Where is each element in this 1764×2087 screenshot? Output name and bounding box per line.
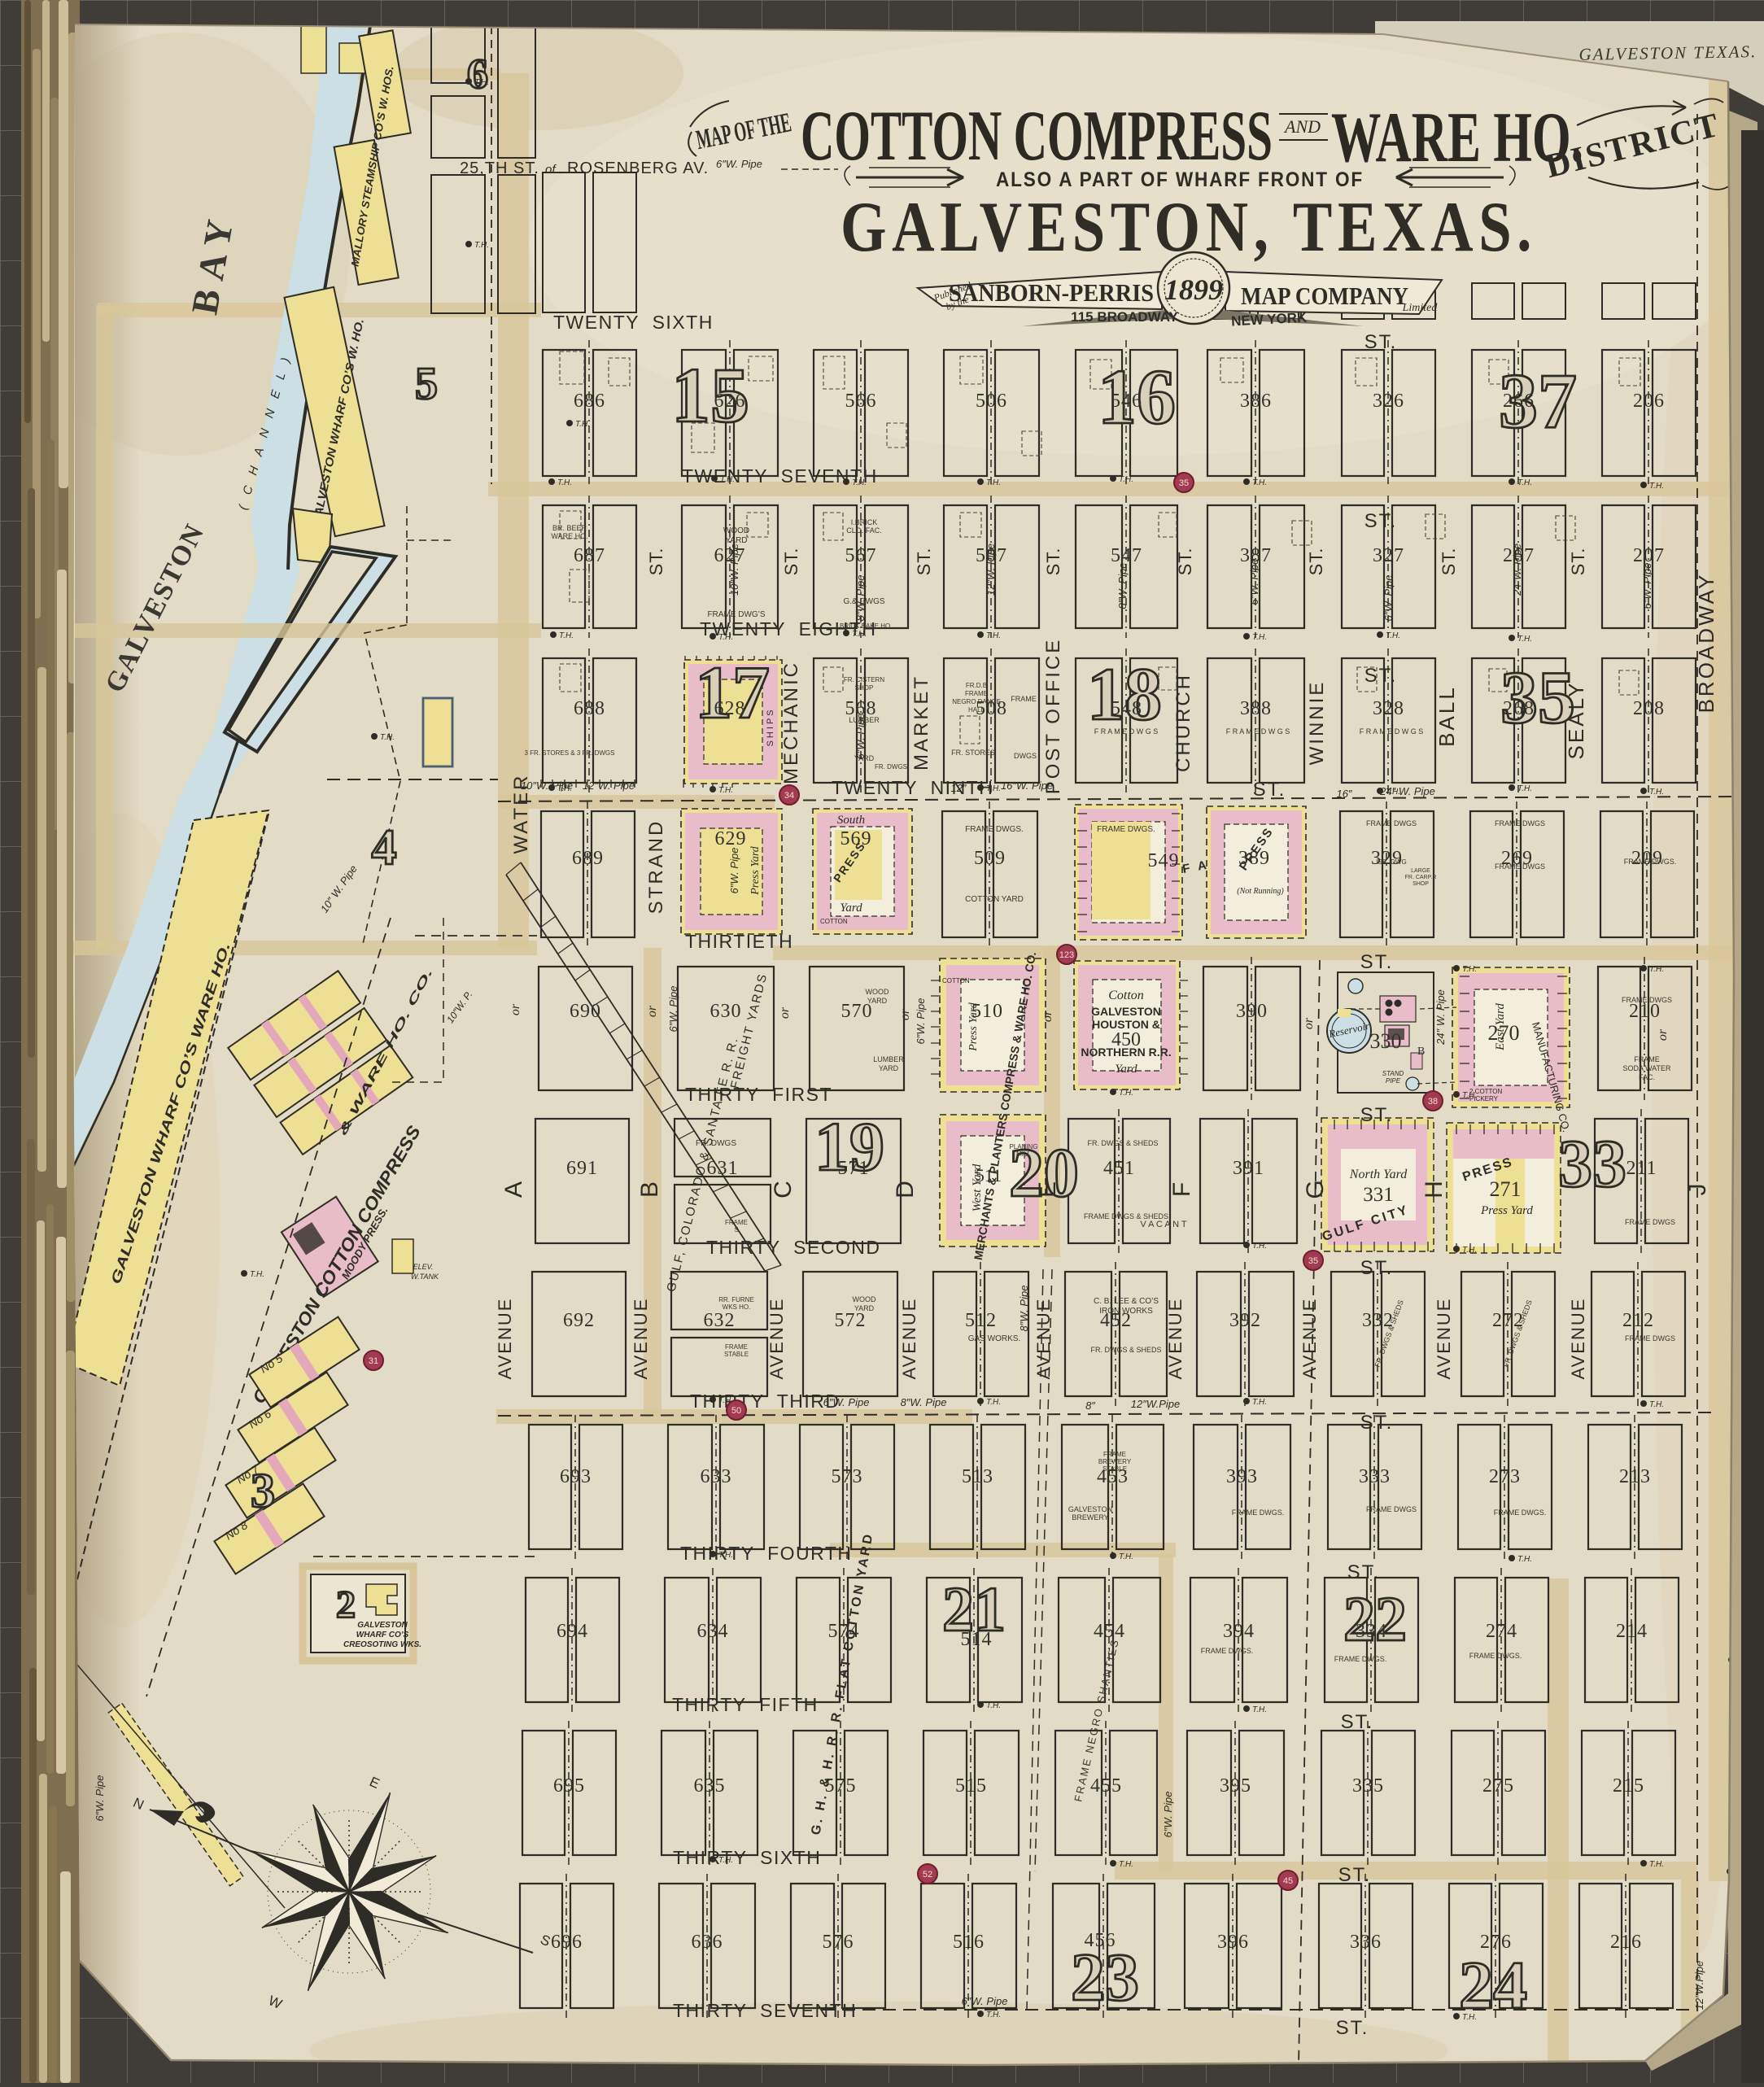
svg-text:T.H.: T.H. (575, 420, 590, 429)
svg-text:T.H.: T.H. (718, 1396, 733, 1405)
svg-text:455: 455 (1090, 1775, 1122, 1797)
svg-text:208: 208 (1633, 698, 1665, 719)
svg-text:52: 52 (923, 1870, 932, 1880)
svg-text:FRAME: FRAME (965, 690, 988, 697)
svg-text:396: 396 (1217, 1932, 1249, 1953)
svg-text:FRAME: FRAME (725, 1219, 748, 1226)
svg-text:Yard: Yard (840, 902, 862, 915)
svg-text:T.H.: T.H. (1119, 475, 1133, 484)
svg-text:212: 212 (1622, 1310, 1654, 1331)
svg-text:FR. CISTERN: FR. CISTERN (844, 676, 884, 683)
svg-text:South: South (837, 814, 865, 827)
svg-text:ST.: ST. (1360, 1257, 1394, 1279)
svg-text:ST.: ST. (1439, 548, 1459, 576)
svg-text:275: 275 (1482, 1775, 1514, 1797)
svg-text:326: 326 (1373, 391, 1404, 412)
svg-text:6″W. Pipe: 6″W. Pipe (823, 1396, 870, 1408)
svg-text:Press Yard: Press Yard (749, 845, 762, 896)
svg-text:1899: 1899 (1164, 273, 1223, 306)
svg-text:D: D (892, 1181, 919, 1198)
svg-text:206: 206 (1633, 391, 1665, 412)
svg-text:COTTON COMPRESS: COTTON COMPRESS (801, 97, 1273, 176)
svg-text:450: 450 (1111, 1029, 1141, 1050)
svg-text:6″W. Pipe: 6″W. Pipe (1382, 575, 1395, 622)
svg-text:T.H.: T.H. (1119, 1552, 1133, 1561)
svg-text:YARD: YARD (879, 1064, 899, 1072)
svg-text:696: 696 (551, 1932, 583, 1953)
svg-text:NEGRO DANCE: NEGRO DANCE (952, 698, 1001, 705)
svg-text:FRAME: FRAME (1634, 1055, 1660, 1063)
svg-text:HALL: HALL (968, 706, 985, 714)
svg-text:AVENUE: AVENUE (495, 1298, 515, 1380)
svg-text:270: 270 (1488, 1021, 1520, 1045)
svg-text:I BRICK BAKE HO.: I BRICK BAKE HO. (836, 622, 893, 630)
svg-text:T.H.: T.H. (1649, 1400, 1664, 1409)
svg-text:274: 274 (1486, 1621, 1517, 1642)
svg-text:MECHANIC: MECHANIC (780, 661, 802, 784)
svg-text:GALVESTON: GALVESTON (357, 1621, 408, 1630)
svg-text:T.H.: T.H. (986, 478, 1001, 487)
svg-text:SHOP: SHOP (855, 684, 874, 692)
svg-text:FRAME DWGS.: FRAME DWGS. (1097, 825, 1155, 834)
svg-text:or: or (898, 1008, 912, 1020)
svg-text:630: 630 (710, 1001, 742, 1022)
svg-text:Cotton: Cotton (1108, 989, 1144, 1002)
svg-text:T.H.: T.H. (250, 1270, 264, 1279)
svg-text:SEALY: SEALY (1564, 681, 1588, 760)
svg-text:391: 391 (1233, 1158, 1264, 1179)
svg-text:331: 331 (1363, 1184, 1394, 1206)
svg-text:695: 695 (553, 1775, 585, 1797)
svg-text:AVENUE: AVENUE (1434, 1298, 1454, 1380)
svg-text:B: B (636, 1181, 663, 1198)
svg-text:213: 213 (1619, 1466, 1651, 1487)
svg-text:F R A M E D W G S: F R A M E D W G S (1360, 727, 1424, 736)
svg-text:GAS WORKS.: GAS WORKS. (968, 1334, 1020, 1343)
svg-text:T.H.: T.H. (986, 2011, 1001, 2019)
svg-text:8″W. Pipe: 8″W. Pipe (1018, 1286, 1030, 1332)
svg-text:T.H.: T.H. (718, 633, 733, 642)
svg-text:THIRTY SECOND: THIRTY SECOND (706, 1237, 881, 1258)
svg-text:POST OFFICE: POST OFFICE (1042, 638, 1064, 795)
svg-text:330: 330 (1370, 1029, 1402, 1053)
svg-text:ISR. DWG: ISR. DWG (1376, 858, 1406, 866)
svg-text:WARE HO.: WARE HO. (551, 532, 587, 540)
svg-text:456: 456 (1085, 1930, 1116, 1951)
svg-text:FRAME DWGS: FRAME DWGS (1495, 862, 1545, 871)
svg-text:6″W. Pipe: 6″W. Pipe (1162, 1792, 1174, 1838)
svg-text:MAP COMPANY: MAP COMPANY (1241, 282, 1408, 310)
svg-text:F R A M E D W G S: F R A M E D W G S (1094, 727, 1159, 736)
svg-text:SODA WATER: SODA WATER (1622, 1064, 1671, 1072)
svg-text:632: 632 (704, 1310, 736, 1331)
svg-text:T.H.: T.H. (986, 784, 1001, 793)
svg-text:335: 335 (1352, 1775, 1384, 1797)
svg-text:691: 691 (566, 1158, 598, 1179)
svg-text:or: or (1041, 1010, 1054, 1022)
svg-text:FR. DWGS & SHEDS: FR. DWGS & SHEDS (1090, 1346, 1161, 1354)
svg-text:PIPE: PIPE (1386, 1077, 1401, 1085)
svg-text:635: 635 (694, 1775, 726, 1797)
svg-text:PLANING: PLANING (1009, 1143, 1037, 1150)
svg-text:THIRTY FIRST: THIRTY FIRST (685, 1084, 832, 1105)
svg-text:STRAND: STRAND (645, 819, 667, 915)
svg-text:276: 276 (1480, 1932, 1512, 1953)
svg-text:FRAME DWGS.: FRAME DWGS. (1232, 1508, 1285, 1517)
svg-text:511: 511 (976, 1165, 1002, 1185)
svg-text:ST.: ST. (781, 548, 801, 576)
svg-text:336: 336 (1350, 1932, 1382, 1953)
svg-text:of: of (545, 163, 557, 177)
svg-text:T.H.: T.H. (1386, 631, 1400, 640)
svg-text:T.H.: T.H. (474, 78, 489, 87)
svg-text:24″W. Pipe: 24″W. Pipe (1511, 544, 1523, 596)
svg-text:3: 3 (251, 1464, 275, 1517)
svg-text:515: 515 (955, 1775, 987, 1797)
svg-text:FRAME DWGS.: FRAME DWGS. (965, 825, 1024, 834)
svg-text:ST.: ST. (1043, 548, 1063, 576)
svg-text:549: 549 (1148, 850, 1180, 871)
svg-text:B: B (1417, 1046, 1425, 1058)
svg-text:ST.: ST. (1253, 779, 1286, 801)
svg-text:386: 386 (1240, 391, 1272, 412)
svg-text:THIRTY FOURTH: THIRTY FOURTH (680, 1543, 853, 1564)
svg-text:AVENUE: AVENUE (766, 1298, 787, 1380)
svg-text:TWENTY NINTH: TWENTY NINTH (832, 777, 993, 798)
svg-text:T.H.: T.H. (720, 475, 735, 484)
svg-text:WINNIE: WINNIE (1306, 680, 1328, 766)
svg-text:636: 636 (692, 1932, 723, 1953)
svg-text:T.H.: T.H. (1252, 478, 1267, 487)
svg-text:T.H.: T.H. (1649, 788, 1664, 797)
svg-text:631: 631 (707, 1158, 739, 1179)
svg-text:FRAME DWGS.: FRAME DWGS. (1469, 1652, 1522, 1660)
svg-text:ST.: ST. (1364, 331, 1398, 353)
svg-text:ELEV.: ELEV. (413, 1263, 434, 1271)
svg-text:693: 693 (560, 1466, 592, 1487)
svg-text:COTTON YARD: COTTON YARD (965, 895, 1024, 904)
svg-text:633: 633 (701, 1466, 732, 1487)
svg-text:Yard: Yard (1115, 1063, 1137, 1076)
svg-text:AVENUE: AVENUE (1299, 1298, 1320, 1380)
svg-text:10″W. Pipe: 10″W. Pipe (728, 544, 740, 596)
svg-text:513: 513 (962, 1466, 993, 1487)
svg-text:T.H.: T.H. (1517, 1555, 1532, 1564)
svg-text:8″W. Pipe: 8″W. Pipe (854, 575, 867, 622)
svg-text:634: 634 (697, 1621, 729, 1642)
svg-text:33: 33 (1558, 1126, 1626, 1202)
svg-text:THIRTIETH: THIRTIETH (685, 931, 793, 952)
svg-text:COTTON: COTTON (942, 977, 970, 985)
svg-text:TWENTY SIXTH: TWENTY SIXTH (553, 312, 714, 333)
svg-text:STABLE: STABLE (724, 1351, 749, 1358)
svg-text:FR. CARP.R: FR. CARP.R (1405, 875, 1437, 880)
svg-text:ST.: ST. (1175, 548, 1195, 576)
svg-text:271: 271 (1490, 1177, 1522, 1201)
svg-text:694: 694 (557, 1621, 588, 1642)
svg-text:FRAME DWGS: FRAME DWGS (1625, 1218, 1675, 1226)
svg-text:FRAME DWGS & SHEDS: FRAME DWGS & SHEDS (1084, 1212, 1168, 1220)
svg-text:Press Yard: Press Yard (1480, 1204, 1533, 1217)
svg-text:T.H.: T.H. (1462, 1091, 1477, 1100)
svg-text:514: 514 (961, 1629, 993, 1650)
svg-text:451: 451 (1103, 1158, 1135, 1179)
svg-text:12″W. Pipe: 12″W. Pipe (985, 544, 997, 596)
svg-text:FAC.: FAC. (1639, 1073, 1655, 1081)
svg-text:S: S (734, 1226, 738, 1233)
svg-text:12″: 12″ (950, 782, 966, 794)
svg-text:T.H.: T.H. (1252, 1242, 1267, 1251)
svg-text:395: 395 (1220, 1775, 1251, 1797)
svg-text:6″W. Pipe: 6″W. Pipe (1248, 559, 1260, 605)
svg-text:V A C A N T: V A C A N T (1140, 1220, 1187, 1229)
svg-text:22: 22 (1343, 1583, 1407, 1654)
svg-text:516: 516 (953, 1932, 985, 1953)
svg-text:T.H.: T.H. (718, 786, 733, 795)
svg-text:RR. FURNE: RR. FURNE (718, 1296, 754, 1303)
svg-text:FRAME: FRAME (1103, 1451, 1126, 1458)
svg-text:6″W. Pipe: 6″W. Pipe (1641, 563, 1653, 609)
svg-text:STABLE: STABLE (1102, 1465, 1127, 1473)
svg-text:687: 687 (574, 545, 605, 566)
svg-text:T.H.: T.H. (474, 241, 489, 250)
svg-text:F: F (1168, 1182, 1195, 1197)
svg-text:6″W. Pipe: 6″W. Pipe (915, 998, 927, 1045)
svg-text:567: 567 (845, 545, 877, 566)
svg-text:ST.: ST. (1360, 951, 1394, 973)
svg-text:BREWERY: BREWERY (1098, 1458, 1132, 1465)
svg-text:327: 327 (1373, 545, 1404, 566)
svg-text:FR.D.B: FR.D.B (966, 682, 987, 689)
svg-text:BREWERY: BREWERY (1072, 1513, 1108, 1522)
svg-text:ST.: ST. (1306, 548, 1326, 576)
svg-text:123: 123 (1059, 950, 1074, 960)
svg-text:WKS HO.: WKS HO. (723, 1303, 751, 1311)
svg-text:T.H.: T.H. (1119, 1860, 1133, 1869)
svg-text:38: 38 (1428, 1097, 1438, 1107)
svg-text:512: 512 (965, 1310, 997, 1331)
svg-text:AVENUE: AVENUE (1033, 1298, 1054, 1380)
svg-text:ROSENBERG AV.: ROSENBERG AV. (567, 159, 709, 177)
svg-text:H: H (1421, 1181, 1447, 1198)
svg-text:THIRTY SEVENTH: THIRTY SEVENTH (673, 2000, 857, 2021)
svg-text:12″W.Pipe: 12″W.Pipe (1131, 1398, 1180, 1410)
svg-text:34: 34 (784, 791, 794, 801)
svg-text:C: C (770, 1181, 797, 1198)
svg-text:45: 45 (1283, 1876, 1293, 1886)
svg-text:T.H.: T.H. (1252, 1398, 1267, 1407)
svg-text:566: 566 (845, 391, 877, 412)
svg-text:W.TANK: W.TANK (411, 1273, 439, 1281)
svg-text:CREOSOTING WKS.: CREOSOTING WKS. (343, 1640, 421, 1649)
svg-text:T.H.: T.H. (1517, 478, 1532, 487)
svg-text:ST.: ST. (1568, 548, 1588, 576)
svg-text:T.H.: T.H. (1649, 482, 1664, 491)
svg-text:ST.: ST. (1364, 665, 1398, 687)
svg-text:328: 328 (1373, 698, 1404, 719)
svg-text:628: 628 (714, 698, 746, 719)
svg-text:(Not Running): (Not Running) (1237, 887, 1284, 896)
svg-text:T.H.: T.H. (559, 631, 574, 640)
svg-text:25,TH ST.: 25,TH ST. (460, 159, 539, 177)
svg-text:2: 2 (336, 1583, 356, 1626)
svg-text:389: 389 (1238, 848, 1270, 869)
svg-text:C. B. LEE & CO’S: C. B. LEE & CO’S (1094, 1297, 1159, 1306)
svg-text:or: or (645, 1005, 659, 1017)
svg-text:MILL: MILL (1016, 1150, 1031, 1158)
svg-text:211: 211 (1626, 1158, 1657, 1179)
svg-text:T.H.: T.H. (1119, 1089, 1133, 1098)
svg-text:FRAME DWGS: FRAME DWGS (1495, 819, 1545, 827)
svg-text:689: 689 (572, 848, 604, 869)
svg-text:AVENUE: AVENUE (1568, 1298, 1588, 1380)
svg-text:573: 573 (832, 1466, 863, 1487)
svg-text:GALVESTON: GALVESTON (1091, 1005, 1161, 1018)
svg-text:8″: 8″ (1085, 1399, 1095, 1412)
svg-text:6: 6 (467, 51, 488, 98)
svg-text:SHOP: SHOP (1413, 881, 1429, 887)
svg-text:393: 393 (1226, 1466, 1258, 1487)
svg-text:T.H.: T.H. (1462, 1246, 1477, 1255)
svg-text:268: 268 (1503, 698, 1535, 719)
svg-text:DWGS: DWGS (1014, 752, 1037, 760)
svg-text:FRAME DWGS.: FRAME DWGS. (1201, 1647, 1254, 1655)
svg-text:YARD: YARD (854, 1304, 875, 1312)
svg-text:or: or (509, 1003, 522, 1015)
svg-text:T.H.: T.H. (1252, 1705, 1267, 1714)
svg-text:T.H.: T.H. (852, 478, 867, 487)
svg-text:GALVESTON: GALVESTON (1068, 1505, 1112, 1513)
svg-text:WHARF CO’S: WHARF CO’S (356, 1631, 409, 1639)
svg-text:WOOD: WOOD (866, 988, 889, 996)
svg-text:CLO. FAC.: CLO. FAC. (846, 526, 882, 535)
svg-text:12″W.Pipe: 12″W.Pipe (1693, 1961, 1705, 2010)
svg-text:T.H.: T.H. (1252, 633, 1267, 642)
svg-text:FRAME DWGS.: FRAME DWGS. (1624, 858, 1677, 866)
svg-text:T.H.: T.H. (380, 733, 395, 742)
svg-text:6″W. Pipe: 6″W. Pipe (667, 986, 679, 1033)
svg-text:ST.: ST. (1360, 1412, 1394, 1434)
svg-text:390: 390 (1236, 1001, 1268, 1022)
svg-text:F R A M E D W G S: F R A M E D W G S (1226, 727, 1290, 736)
svg-text:6″W. Pipe: 6″W. Pipe (716, 158, 762, 170)
svg-text:12″W. Pipe: 12″W. Pipe (583, 779, 635, 792)
svg-text:509: 509 (974, 848, 1006, 869)
svg-text:FRAME: FRAME (1011, 695, 1037, 703)
svg-text:FRAME DWGS.: FRAME DWGS. (1334, 1655, 1387, 1663)
svg-text:THIRTY FIFTH: THIRTY FIFTH (672, 1694, 819, 1715)
svg-text:FRAME: FRAME (725, 1343, 748, 1351)
svg-text:3 FR. STORES & 3 FR. DWGS: 3 FR. STORES & 3 FR. DWGS (525, 749, 615, 757)
svg-text:692: 692 (563, 1310, 595, 1331)
svg-text:T.H.: T.H. (1517, 635, 1532, 644)
svg-text:G: G (1302, 1180, 1329, 1198)
svg-text:North Yard: North Yard (1349, 1168, 1408, 1181)
svg-text:569: 569 (841, 828, 872, 849)
svg-text:T.H.: T.H. (718, 1551, 733, 1560)
svg-text:J: J (1684, 1184, 1711, 1196)
svg-text:I.BRICK: I.BRICK (851, 518, 878, 526)
svg-text:388: 388 (1240, 698, 1272, 719)
svg-text:T.H.: T.H. (1462, 965, 1477, 974)
svg-text:FRAME DWGS: FRAME DWGS (1625, 1334, 1675, 1343)
svg-text:8″W. Pipe: 8″W. Pipe (1116, 563, 1129, 609)
svg-text:8″W. Pipe: 8″W. Pipe (901, 1396, 947, 1408)
svg-text:5: 5 (415, 359, 438, 409)
svg-text:ST.: ST. (1336, 2017, 1369, 2039)
svg-text:T.H.: T.H. (718, 1856, 733, 1865)
svg-text:17: 17 (695, 651, 770, 734)
svg-text:CHURCH: CHURCH (1172, 673, 1194, 772)
svg-text:394: 394 (1223, 1621, 1255, 1642)
svg-text:MARKET: MARKET (910, 675, 932, 771)
svg-text:ST.: ST. (1364, 510, 1398, 532)
svg-text:6″W. Pipe: 6″W. Pipe (94, 1775, 106, 1822)
svg-text:AVENUE: AVENUE (1165, 1298, 1185, 1380)
svg-text:690: 690 (570, 1001, 601, 1022)
svg-text:ST.: ST. (646, 548, 666, 576)
svg-text:T.H.: T.H. (1462, 2013, 1477, 2022)
svg-text:392: 392 (1229, 1310, 1261, 1331)
svg-text:A: A (500, 1181, 527, 1198)
svg-text:629: 629 (715, 828, 747, 849)
svg-text:IRON WORKS: IRON WORKS (1099, 1307, 1153, 1316)
svg-text:4: 4 (372, 820, 397, 875)
svg-text:or: or (1656, 1028, 1670, 1041)
svg-text:T.H.: T.H. (986, 1398, 1001, 1407)
svg-text:LARGE: LARGE (1411, 868, 1430, 874)
svg-text:BR. BEER: BR. BEER (552, 524, 587, 532)
svg-text:10″W. Pipe: 10″W. Pipe (521, 779, 573, 792)
svg-text:AVENUE: AVENUE (631, 1298, 651, 1380)
svg-text:T.H.: T.H. (557, 478, 572, 487)
svg-text:686: 686 (574, 391, 605, 412)
svg-text:16″: 16″ (1336, 788, 1351, 800)
svg-text:Limited: Limited (1402, 302, 1439, 314)
svg-text:BALL: BALL (1434, 685, 1459, 747)
svg-text:546: 546 (1111, 391, 1142, 412)
svg-text:115 BROADWAY: 115 BROADWAY (1071, 309, 1178, 325)
svg-text:THIRTY SIXTH: THIRTY SIXTH (673, 1847, 821, 1868)
svg-text:WOOD: WOOD (723, 526, 749, 535)
svg-text:LUMBER: LUMBER (873, 1055, 904, 1063)
svg-text:or: or (778, 1006, 792, 1019)
svg-text:24″ W. Pipe: 24″ W. Pipe (1379, 785, 1435, 797)
svg-text:6″W. Pipe: 6″W. Pipe (962, 1995, 1008, 2007)
svg-text:18: 18 (1087, 653, 1162, 736)
svg-text:T.H.: T.H. (986, 1701, 1001, 1710)
svg-text:576: 576 (823, 1932, 854, 1953)
svg-text:or: or (1302, 1017, 1316, 1029)
svg-text:16″W. Pipe: 16″W. Pipe (1001, 779, 1053, 792)
svg-text:35: 35 (1308, 1256, 1318, 1266)
svg-text:FRAME DWGS.: FRAME DWGS. (1494, 1508, 1547, 1517)
svg-text:35: 35 (1179, 478, 1189, 488)
svg-text:AVENUE: AVENUE (899, 1298, 919, 1380)
svg-text:FRAME DWGS: FRAME DWGS (1366, 819, 1417, 827)
svg-text:T.H.: T.H. (1649, 965, 1664, 974)
svg-text:FR. DWGS & SHEDS: FR. DWGS & SHEDS (1087, 1139, 1158, 1147)
svg-text:216: 216 (1610, 1932, 1642, 1953)
svg-text:T.H.: T.H. (986, 631, 1001, 640)
svg-text:333: 333 (1359, 1466, 1391, 1487)
svg-text:T.H.: T.H. (1517, 784, 1532, 793)
svg-text:FRAME DWGS: FRAME DWGS (1366, 1505, 1417, 1513)
svg-text:SANBORN-PERRIS: SANBORN-PERRIS (949, 278, 1154, 307)
svg-text:STAND: STAND (1382, 1070, 1404, 1077)
svg-text:FR. DWGS: FR. DWGS (875, 763, 907, 771)
svg-text:FRAME DWGS: FRAME DWGS (1622, 996, 1672, 1004)
